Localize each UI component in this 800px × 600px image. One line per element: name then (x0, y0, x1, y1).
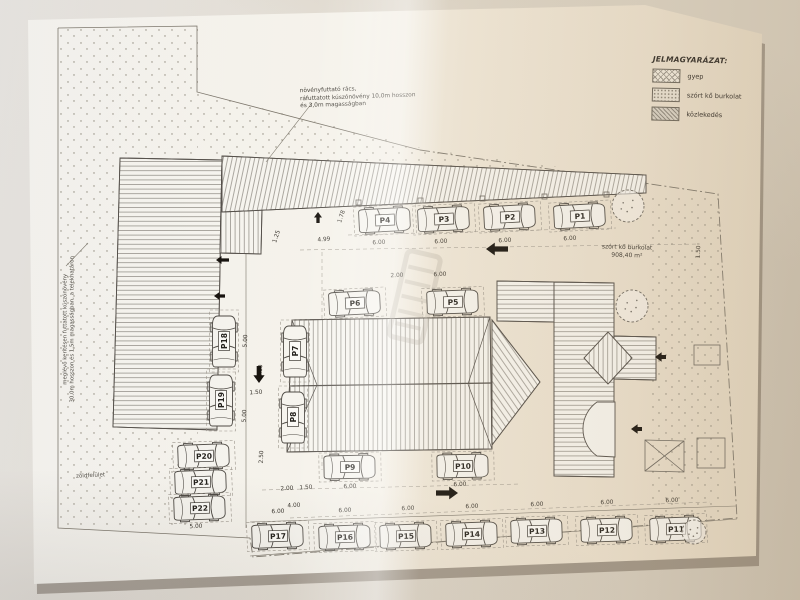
dimension-label: 6.00 (665, 498, 678, 504)
dimension-label: 2.50 (259, 450, 265, 463)
parking-spot-label: P9 (345, 463, 356, 472)
parking-spot-P19: P19 (207, 369, 236, 431)
parking-spot-label: P7 (291, 346, 300, 357)
direction-arrow-right (436, 487, 458, 500)
parking-spot-label: P11 (668, 525, 684, 535)
parking-spot-P5: P5 (422, 286, 485, 317)
parking-spot-label: P20 (196, 452, 212, 462)
parking-spot-label: P1 (574, 212, 585, 222)
dimension-label: 6.00 (453, 482, 466, 488)
dimension-label: 4.00 (287, 503, 301, 510)
dimension-label: 1.50 (299, 485, 313, 492)
parking-spot-P12: P12 (576, 514, 639, 545)
parking-spot-label: P5 (447, 298, 458, 307)
parking-spot-P1: P1 (548, 200, 611, 232)
dimension-label: 1.78 (337, 209, 347, 223)
legend-item-kozlekedes: közlekedés (651, 106, 776, 123)
gravel-swatch-icon (652, 87, 680, 102)
parking-spot-label: P19 (217, 392, 226, 408)
direction-arrow-up (314, 212, 322, 223)
parking-spot-P2: P2 (478, 201, 541, 233)
parking-spot-label: P16 (337, 533, 353, 543)
parking-spot-label: P6 (349, 299, 360, 309)
parking-spot-P3: P3 (412, 203, 475, 235)
direction-arrow-left (486, 243, 508, 256)
parking-spot-label: P3 (438, 215, 449, 225)
parking-spot-label: P13 (529, 527, 545, 537)
parking-spot-P18: P18 (210, 310, 239, 372)
tree-icon (616, 290, 648, 322)
parking-spot-label: P17 (270, 532, 286, 542)
dimension-label: 6.00 (372, 240, 386, 247)
parking-spot-label: P4 (379, 216, 390, 226)
traffic-swatch-icon (651, 106, 679, 121)
dimension-label: 6.00 (338, 508, 351, 514)
parking-spot-label: P18 (220, 333, 229, 349)
parking-spot-P13: P13 (506, 515, 569, 546)
dimension-label: 5.00 (242, 409, 248, 422)
dimension-label: 6.00 (498, 238, 512, 245)
pavement-area-label: szórt kő burkolat 908,40 m² (588, 243, 666, 261)
parking-spot-P17: P17 (247, 520, 310, 551)
buildings (113, 156, 656, 477)
parking-spot-P4: P4 (353, 204, 416, 236)
dimension-label: 6.00 (343, 484, 356, 490)
parking-spot-P20: P20 (173, 440, 236, 471)
dimension-label: 6.00 (433, 272, 446, 278)
legend-item-gyep: gyep (652, 68, 777, 85)
annotation-fence-plants: meglévő kerítésen futtatott kúszónövény … (63, 224, 78, 434)
direction-arrow-left (631, 424, 642, 434)
annotation-plant-grid: növényfuttató rács, ráfuttatott kúszónöv… (300, 84, 433, 111)
parking-spot-label: P14 (464, 530, 480, 540)
photo-background: P1P2P3P4P5P6P7P8P9P10P11P12P13P14P15P16P… (0, 0, 800, 600)
parking-spot-label: P22 (192, 504, 208, 514)
dimension-label: 6.00 (563, 236, 577, 243)
parking-spot-P22: P22 (169, 492, 232, 523)
dimension-label: 5.00 (243, 334, 249, 347)
legend-title: JELMAGYARÁZAT: (653, 54, 778, 66)
dimension-label: 6.00 (530, 502, 543, 508)
legend-item-szort-ko: szórt kő burkolat (652, 87, 777, 104)
site-plan-paper: P1P2P3P4P5P6P7P8P9P10P11P12P13P14P15P16P… (0, 0, 800, 600)
parking-spot-label: P21 (193, 478, 209, 488)
dimension-label: 6.00 (434, 239, 448, 246)
dimension-label: 2.00 (280, 486, 294, 493)
parking-spot-label: P2 (504, 213, 515, 223)
parking-spot-label: P8 (289, 412, 298, 423)
dimension-label: 6.00 (271, 509, 284, 515)
parking-spot-P9: P9 (319, 452, 381, 482)
dimension-label: 6.00 (401, 506, 414, 512)
tree-icon (682, 520, 706, 544)
dimension-label: 1.25 (272, 229, 282, 243)
dimension-label: 2.00 (390, 273, 403, 279)
dimension-label: 1.50 (696, 245, 702, 258)
parking-spot-label: P15 (398, 532, 414, 542)
grass-swatch-icon (652, 68, 680, 83)
legend: JELMAGYARÁZAT: gyep szórt kő burkolat kö… (651, 54, 778, 128)
parking-spot-P6: P6 (323, 287, 386, 319)
parking-spot-P10: P10 (432, 451, 494, 481)
parking-spot-label: P10 (455, 462, 471, 471)
parking-spot-P15: P15 (375, 520, 438, 551)
tree-icon (612, 190, 644, 222)
parking-spot-P14: P14 (441, 518, 504, 549)
dimension-label: 1.50 (249, 390, 263, 397)
dimension-label: 6.00 (600, 500, 613, 506)
parking-spot-label: P12 (599, 526, 615, 536)
parking-spot-P8: P8 (279, 386, 308, 448)
dimension-label: 6.00 (465, 504, 478, 510)
dimension-label: 4.99 (317, 237, 331, 244)
dimension-label: 5.00 (189, 524, 202, 530)
parking-spot-P7: P7 (281, 320, 310, 382)
